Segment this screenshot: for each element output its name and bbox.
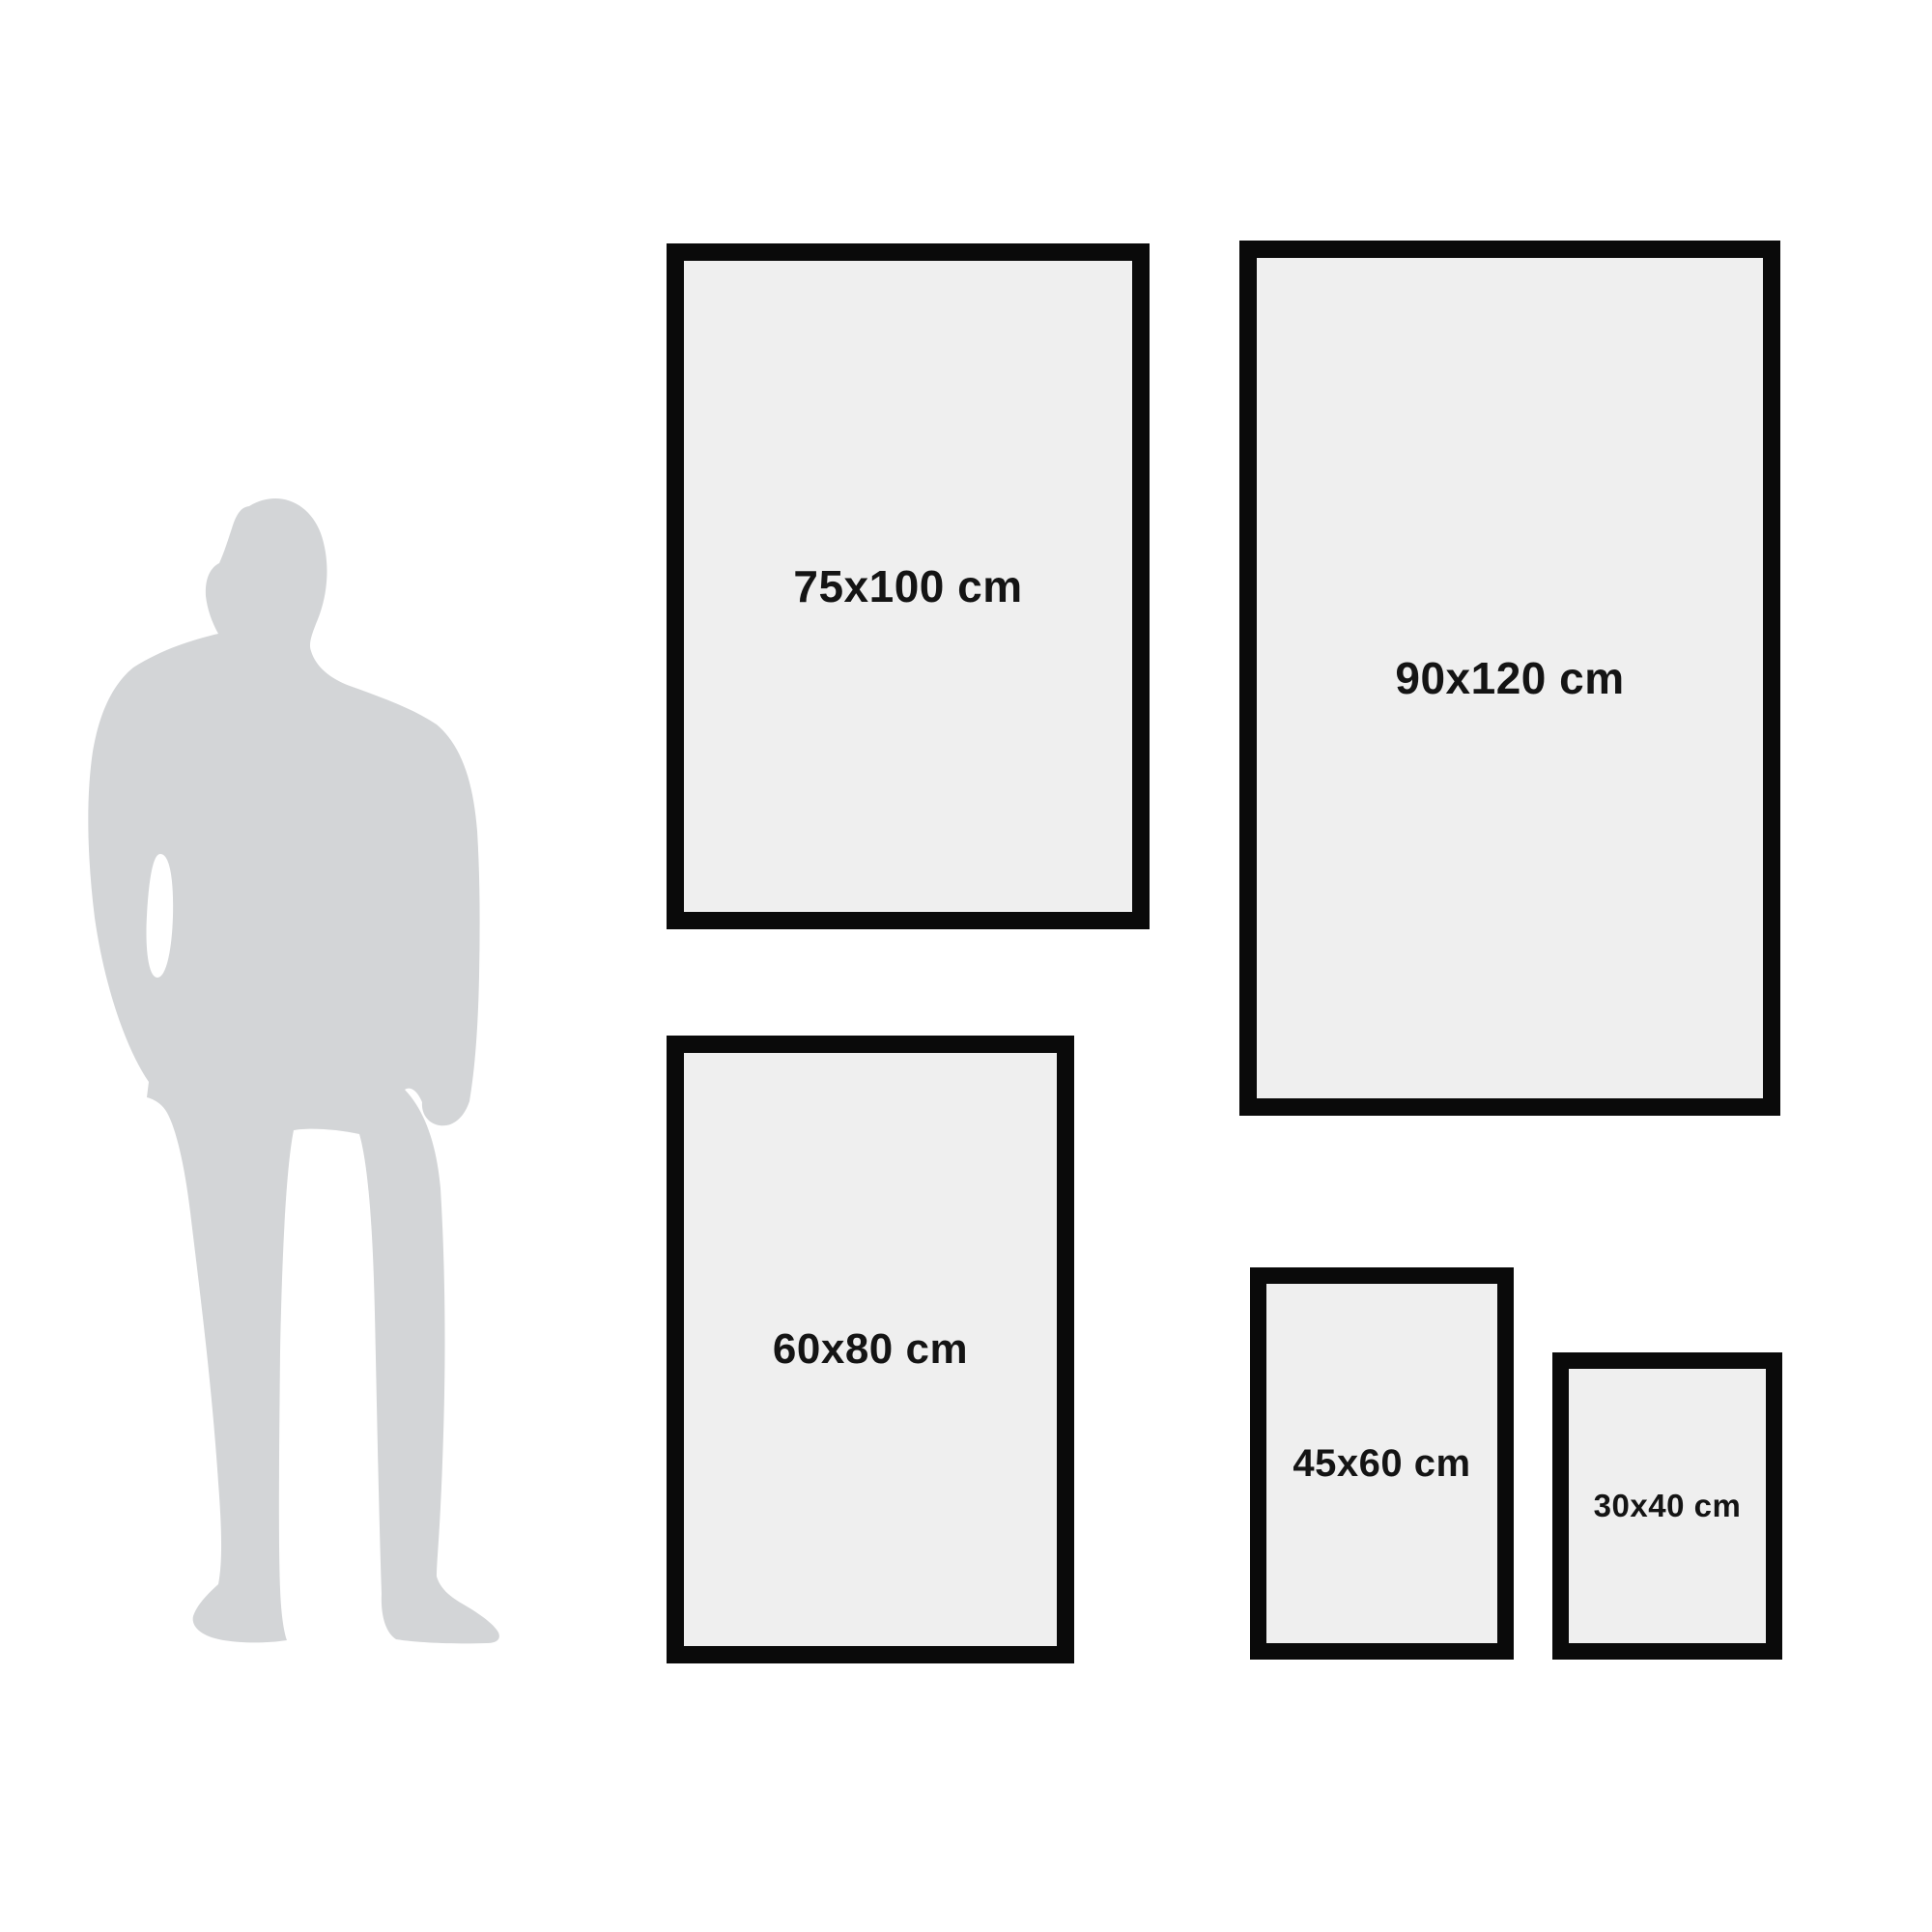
frame-45x60cm: 45x60 cm <box>1250 1267 1514 1660</box>
frame-size-label: 90x120 cm <box>1395 652 1624 704</box>
frame-size-label: 60x80 cm <box>773 1325 968 1374</box>
size-comparison-diagram: 75x100 cm 90x120 cm 60x80 cm 45x60 cm 30… <box>0 0 1932 1932</box>
frame-size-label: 30x40 cm <box>1594 1488 1742 1524</box>
frame-90x120cm: 90x120 cm <box>1239 241 1780 1116</box>
frame-75x100cm: 75x100 cm <box>667 243 1150 929</box>
frame-30x40cm: 30x40 cm <box>1552 1352 1782 1660</box>
frame-60x80cm: 60x80 cm <box>667 1036 1074 1663</box>
frame-size-label: 45x60 cm <box>1293 1442 1470 1486</box>
frame-size-label: 75x100 cm <box>793 560 1022 612</box>
